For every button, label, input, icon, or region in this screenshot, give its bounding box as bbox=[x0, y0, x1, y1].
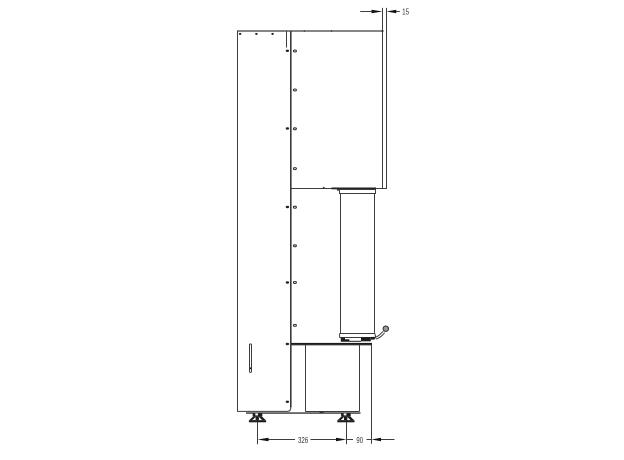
svg-text:15: 15 bbox=[402, 7, 409, 17]
svg-text:326: 326 bbox=[298, 435, 308, 445]
svg-text:90: 90 bbox=[356, 435, 363, 445]
